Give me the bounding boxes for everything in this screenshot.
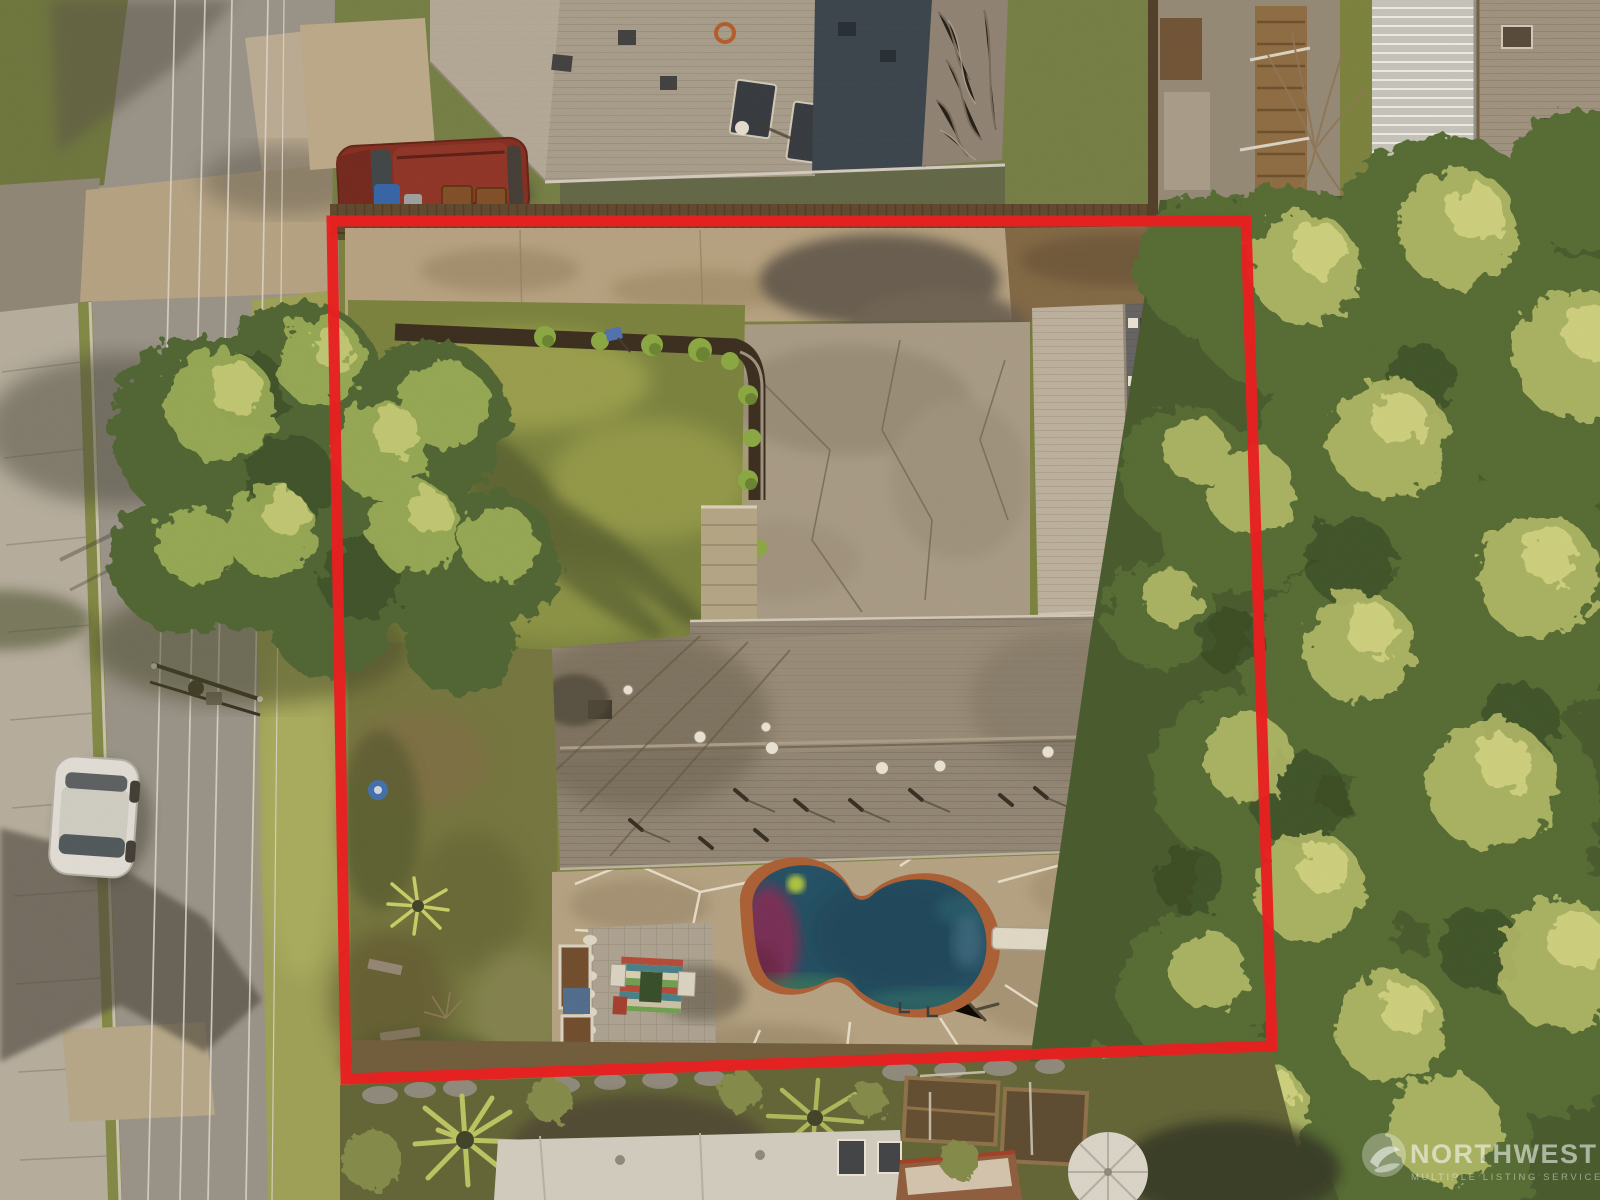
watermark-brand: NORTHWEST bbox=[1410, 1139, 1597, 1169]
film-grain-overlay bbox=[0, 0, 1600, 1200]
aerial-photo-canvas: NORTHWEST MULTIPLE LISTING SERVICE bbox=[0, 0, 1600, 1200]
nwmls-globe-icon bbox=[1362, 1133, 1406, 1177]
aerial-photo: NORTHWEST MULTIPLE LISTING SERVICE bbox=[0, 0, 1600, 1200]
watermark-tagline: MULTIPLE LISTING SERVICE bbox=[1411, 1172, 1600, 1183]
